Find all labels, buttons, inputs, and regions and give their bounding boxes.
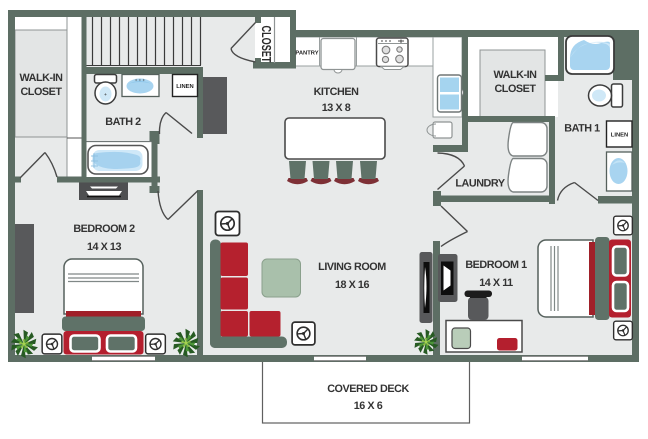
svg-text:14 X 11: 14 X 11 (479, 277, 513, 289)
svg-text:BEDROOM 1: BEDROOM 1 (465, 259, 527, 271)
svg-text:13 X 8: 13 X 8 (322, 102, 351, 114)
svg-text:+: + (104, 92, 107, 98)
svg-text:LINEN: LINEN (176, 84, 193, 90)
svg-text:PANTRY: PANTRY (295, 51, 318, 57)
svg-text:CLOSET: CLOSET (494, 83, 536, 95)
svg-text:16 X 6: 16 X 6 (354, 400, 383, 412)
svg-text:LINEN: LINEN (611, 133, 628, 139)
svg-text:LIVING ROOM: LIVING ROOM (318, 261, 386, 273)
svg-text:KITCHEN: KITCHEN (314, 86, 359, 98)
svg-text:BATH 1: BATH 1 (564, 123, 600, 135)
svg-text:BEDROOM 2: BEDROOM 2 (73, 223, 135, 235)
svg-text:14 X 13: 14 X 13 (87, 241, 122, 253)
svg-text:WALK-IN: WALK-IN (19, 72, 63, 84)
svg-text:WALK-IN: WALK-IN (493, 69, 537, 81)
svg-text:+ + +: + + + (135, 78, 146, 83)
svg-text:LAUNDRY: LAUNDRY (455, 178, 505, 190)
svg-text:COVERED DECK: COVERED DECK (327, 383, 409, 395)
svg-text:CLOSET: CLOSET (20, 86, 62, 98)
svg-text:CLOSET: CLOSET (259, 26, 274, 63)
svg-text:BATH 2: BATH 2 (105, 116, 141, 128)
svg-text:18 X 16: 18 X 16 (335, 279, 370, 291)
